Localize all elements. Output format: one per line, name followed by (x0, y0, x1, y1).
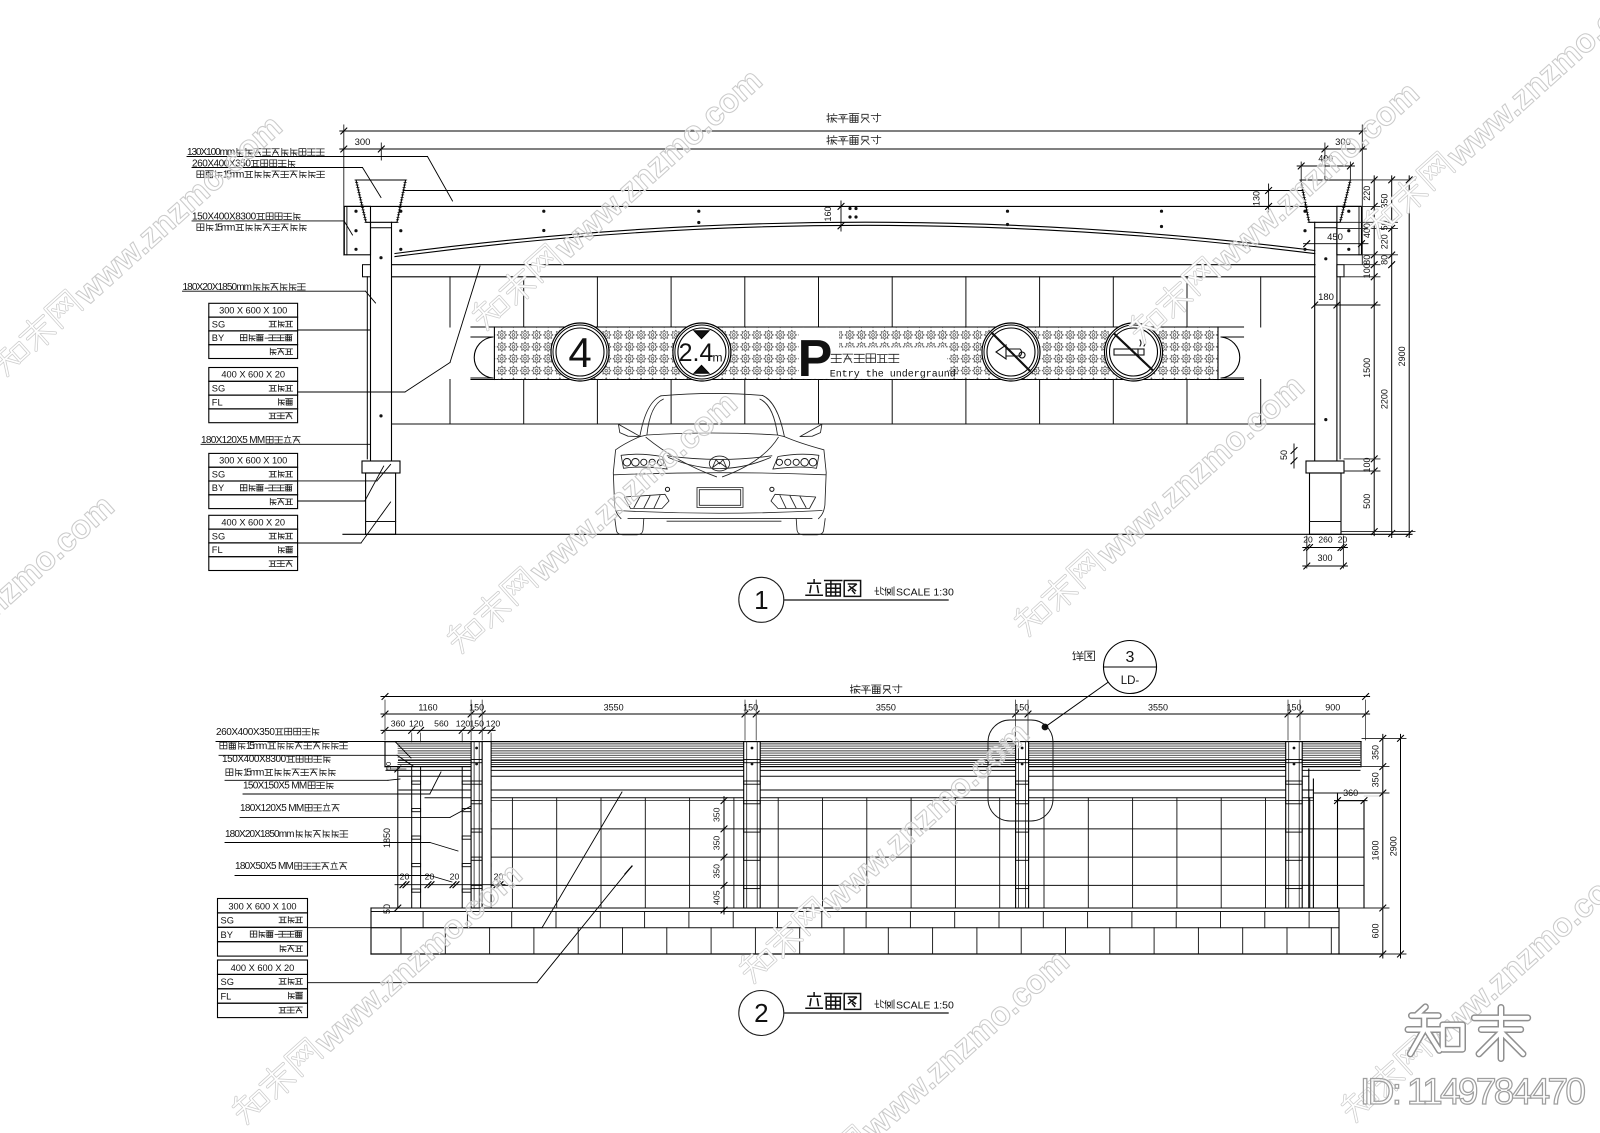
svg-text:50: 50 (1279, 450, 1289, 460)
svg-text:SG: SG (221, 916, 234, 926)
svg-text:900: 900 (1325, 703, 1340, 713)
svg-text:Entry the undergraund: Entry the undergraund (830, 369, 956, 381)
svg-text:SG: SG (212, 531, 225, 541)
svg-text:20: 20 (400, 872, 410, 882)
svg-text:FL: FL (212, 397, 223, 407)
svg-text:100: 100 (1362, 263, 1372, 278)
svg-text:1: 1 (754, 585, 768, 615)
svg-text:SG: SG (212, 319, 225, 329)
svg-text:260X400X350: 260X400X350 (216, 727, 275, 738)
svg-text:400 X 600 X 20: 400 X 600 X 20 (221, 370, 285, 380)
svg-text:100: 100 (1362, 457, 1372, 472)
svg-text:FL: FL (221, 992, 232, 1002)
svg-text:80: 80 (1380, 255, 1390, 265)
svg-text:20: 20 (450, 872, 460, 882)
svg-text:m: m (713, 351, 723, 365)
svg-text:300: 300 (355, 137, 371, 148)
svg-text:300 X 600 X 100: 300 X 600 X 100 (228, 901, 296, 911)
svg-text:1500: 1500 (1362, 358, 1372, 378)
svg-text:450: 450 (1327, 232, 1343, 243)
svg-text:180X50X5 MM: 180X50X5 MM (235, 861, 294, 872)
svg-text:1160: 1160 (418, 703, 437, 713)
svg-text:3550: 3550 (604, 703, 624, 713)
svg-text:1600: 1600 (1371, 840, 1381, 860)
svg-text:180: 180 (1318, 292, 1334, 303)
svg-text:ID: 1149784470: ID: 1149784470 (1360, 1071, 1586, 1112)
svg-text:2200: 2200 (1380, 389, 1390, 409)
svg-text:400 X 600 X 20: 400 X 600 X 20 (231, 963, 295, 973)
svg-text:SCALE 1:50: SCALE 1:50 (896, 1000, 954, 1012)
svg-text:15mm: 15mm (246, 741, 267, 752)
svg-text:20: 20 (1338, 535, 1348, 545)
svg-text:350: 350 (712, 807, 722, 822)
svg-text:15mm: 15mm (243, 767, 264, 778)
svg-text:350: 350 (712, 864, 722, 879)
svg-text:150X150X5 MM: 150X150X5 MM (243, 780, 307, 791)
svg-text:2900: 2900 (1388, 836, 1398, 856)
svg-text:560: 560 (434, 719, 449, 729)
svg-text:SG: SG (212, 469, 225, 479)
svg-text:150: 150 (1286, 703, 1301, 713)
svg-text:4: 4 (568, 329, 591, 376)
svg-text:P: P (798, 330, 833, 388)
svg-text:2.4: 2.4 (679, 339, 714, 367)
svg-text:150: 150 (1014, 703, 1029, 713)
svg-text:20: 20 (1303, 535, 1313, 545)
svg-text:120: 120 (456, 719, 471, 729)
svg-text:350: 350 (1371, 772, 1381, 787)
svg-text:BY: BY (212, 483, 224, 493)
svg-text:SG: SG (212, 384, 225, 394)
svg-text:LD-: LD- (1121, 675, 1140, 687)
svg-text:180X20X1850mm: 180X20X1850mm (225, 829, 295, 840)
svg-text:300 X 600 X 100: 300 X 600 X 100 (219, 456, 287, 466)
svg-text:15mm: 15mm (214, 222, 235, 233)
svg-text:360: 360 (391, 719, 406, 729)
svg-text:600: 600 (1371, 923, 1381, 938)
svg-text:300: 300 (1317, 553, 1332, 563)
svg-text:BY: BY (221, 930, 233, 940)
svg-text:160: 160 (823, 206, 833, 221)
svg-text:BY: BY (212, 333, 224, 343)
svg-text:260: 260 (1318, 535, 1332, 545)
svg-text:400 X 600 X 20: 400 X 600 X 20 (221, 518, 285, 528)
svg-text:350: 350 (1371, 745, 1381, 760)
svg-text:3550: 3550 (1148, 703, 1168, 713)
svg-text:2900: 2900 (1397, 346, 1407, 366)
svg-text:2: 2 (754, 998, 768, 1028)
svg-text:3550: 3550 (876, 703, 896, 713)
svg-text:120: 120 (409, 719, 424, 729)
svg-text:1850: 1850 (382, 828, 392, 848)
svg-text:500: 500 (1362, 494, 1372, 509)
svg-text:150X400X8300: 150X400X8300 (222, 754, 287, 765)
svg-text:50: 50 (382, 904, 392, 914)
svg-text:SG: SG (221, 977, 234, 987)
svg-text:120: 120 (486, 719, 501, 729)
svg-text:SCALE 1:30: SCALE 1:30 (896, 587, 954, 599)
svg-text:300 X 600 X 100: 300 X 600 X 100 (219, 306, 287, 316)
svg-text:405: 405 (712, 890, 722, 905)
svg-text:350: 350 (712, 836, 722, 851)
svg-text:FL: FL (212, 545, 223, 555)
svg-text:360: 360 (1343, 788, 1358, 798)
svg-text:180X120X5 MM: 180X120X5 MM (240, 803, 304, 814)
svg-text:220: 220 (1362, 186, 1372, 201)
svg-text:3: 3 (1126, 649, 1135, 666)
